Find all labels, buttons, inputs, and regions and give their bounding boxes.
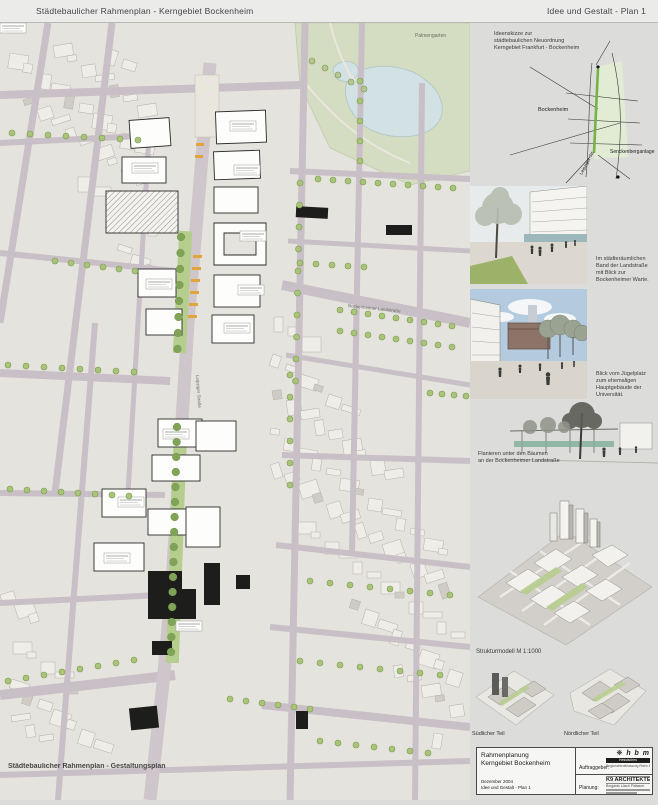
sketch-label-senckenberg: Senckenberganlage xyxy=(610,149,655,155)
sketch-label-street: Leipziger Str. xyxy=(578,150,595,176)
sketch-label-bockenheim: Bockenheim xyxy=(538,107,569,113)
sidebar: Ideenskizze zur städtebaulichen Neuordnu… xyxy=(470,23,658,800)
architect-address-placeholder xyxy=(606,789,650,791)
sheet-header: Städtebaulicher Rahmenplan - Kerngebiet … xyxy=(0,0,658,23)
panel-rendering-1: Im städteräumlichen Band der Landstraße … xyxy=(470,186,658,286)
project-title: Rahmenplanung Kerngebiet Bockenheim xyxy=(481,752,550,769)
model-north-caption: Nördlicher Teil xyxy=(564,731,599,737)
panel-rendering-3: Flanieren unter den Bäumen an der Bocken… xyxy=(470,401,658,473)
rendering-3-caption: Flanieren unter den Bäumen an der Bocken… xyxy=(478,451,564,465)
model-caption: Strukturmodell M 1:1000 xyxy=(476,649,596,655)
panel-structural-model: Strukturmodell M 1:1000 xyxy=(470,479,658,661)
client-label: Auftraggeber: xyxy=(579,765,609,771)
masterplan-map: Palmengarten xyxy=(0,23,470,800)
title-block-project-cell: Rahmenplanung Kerngebiet Bockenheim Deze… xyxy=(477,748,576,794)
planning-label: Planung: xyxy=(579,785,599,791)
model-south-image xyxy=(472,667,558,729)
client-row: Auftraggeber: ❋ h b m Hessisches Baumana… xyxy=(576,748,652,775)
rendering-2-image xyxy=(470,289,587,399)
client-sub: Regionalniederlassung Rhein-Main xyxy=(606,764,650,768)
hbm-tree-icon: ❋ xyxy=(617,750,624,757)
architect-sub: Borgards Lösch Piribauer xyxy=(606,784,650,788)
map-overlay-label: Städtebaulicher Rahmenplan - Gestaltungs… xyxy=(8,763,166,770)
rendering-1-caption: Im städteräumlichen Band der Landstraße … xyxy=(596,256,654,284)
sheet-date-title: Dezember 2004 Idee und Gestalt - Plan 1 xyxy=(481,779,531,791)
model-axo-image xyxy=(470,479,658,647)
client-name: Hessisches Baumanagement xyxy=(606,758,650,763)
rendering-2-caption: Blick vom Jügelplatz zum ehemaligen Haup… xyxy=(596,371,654,399)
sheet-title: Städtebaulicher Rahmenplan - Kerngebiet … xyxy=(36,6,253,16)
title-block: Rahmenplanung Kerngebiet Bockenheim Deze… xyxy=(476,747,653,795)
rendering-1-image xyxy=(470,186,587,284)
sheet-subtitle: Idee und Gestalt - Plan 1 xyxy=(547,6,646,16)
planner-row: Planung: K9 ARCHITEKTEN Borgards Lösch P… xyxy=(576,775,652,794)
architect-logo: K9 ARCHITEKTEN Borgards Lösch Piribauer xyxy=(606,776,650,794)
panel-concept-sketch: Ideenskizze zur städtebaulichen Neuordnu… xyxy=(470,27,658,185)
sketch-caption: Ideenskizze zur städtebaulichen Neuordnu… xyxy=(494,31,589,52)
client-logo: ❋ h b m Hessisches Baumanagement Regiona… xyxy=(606,749,650,768)
depot-block xyxy=(106,191,178,233)
title-block-parties: Auftraggeber: ❋ h b m Hessisches Baumana… xyxy=(576,748,652,794)
park-label: Palmengarten xyxy=(415,33,446,39)
masterplan-map-drawing: Palmengarten xyxy=(0,23,470,800)
panel-rendering-2: Blick vom Jügelplatz zum ehemaligen Haup… xyxy=(470,289,658,401)
model-north-image xyxy=(564,667,650,729)
panel-model-parts: Südlicher Teil Nördlicher Teil xyxy=(470,667,658,741)
model-south-caption: Südlicher Teil xyxy=(472,731,505,737)
architect-name: K9 ARCHITEKTEN xyxy=(606,776,650,784)
